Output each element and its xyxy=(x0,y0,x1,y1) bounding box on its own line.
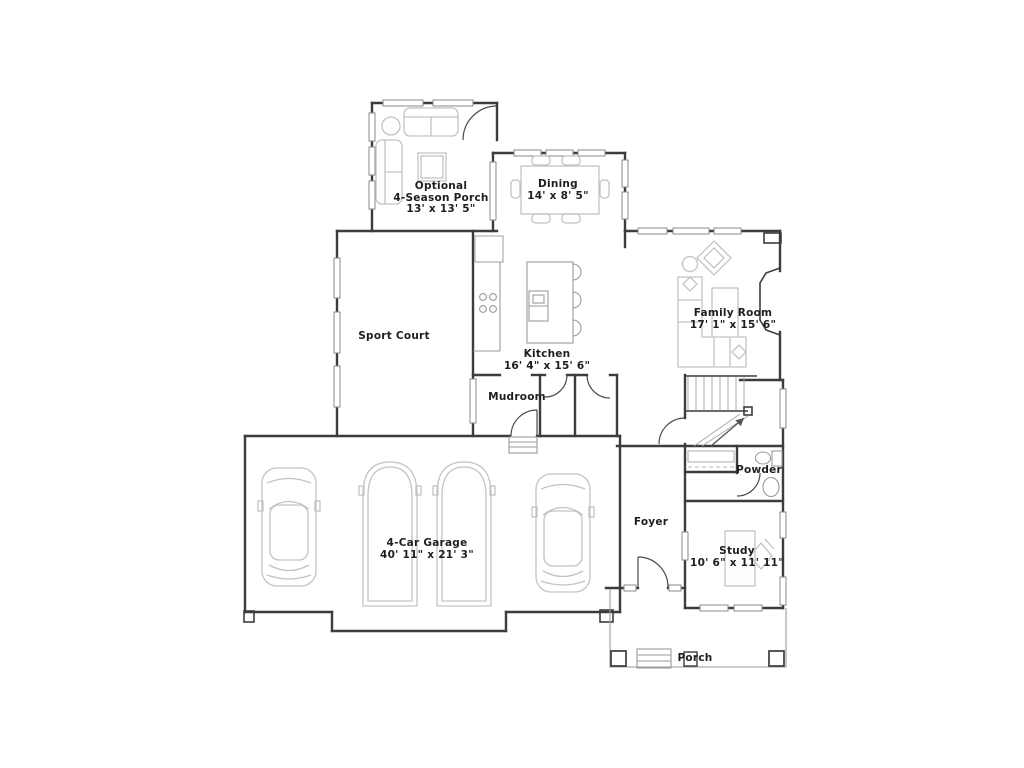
window xyxy=(383,100,423,106)
coffee-table-icon xyxy=(418,153,446,181)
stair-arrow xyxy=(735,418,744,426)
room-label-sport-court: Sport Court xyxy=(358,331,430,343)
understair-door-arc xyxy=(659,418,685,444)
window xyxy=(433,100,473,106)
garage-entry-door xyxy=(511,410,537,436)
van-outline-icon xyxy=(433,462,495,606)
porch-column-icon xyxy=(769,651,784,666)
room-name: Porch xyxy=(677,653,712,665)
side-table-icon xyxy=(683,257,698,272)
window xyxy=(638,228,667,234)
corner-post xyxy=(764,233,781,243)
window xyxy=(334,258,340,298)
window xyxy=(780,512,786,538)
window xyxy=(334,366,340,407)
front-door-icon xyxy=(638,557,668,587)
room-name: Family Room xyxy=(690,308,776,320)
room-dims: 16' 4" x 15' 6" xyxy=(504,361,590,373)
sidelite-window xyxy=(624,585,636,591)
room-name: Foyer xyxy=(634,517,668,529)
armchair-icon xyxy=(697,241,731,275)
porch-column-icon xyxy=(611,651,626,666)
window xyxy=(490,162,496,220)
room-dims: 40' 11" x 21' 3" xyxy=(380,550,474,562)
van-outline-icon xyxy=(359,462,421,606)
refrigerator-icon xyxy=(475,236,503,262)
kitchen-fixtures xyxy=(473,236,581,351)
room-label-study: Study 10' 6" x 11' 11" xyxy=(690,546,784,569)
window xyxy=(700,605,728,611)
window xyxy=(714,228,741,234)
porch-door-arc xyxy=(463,106,497,140)
closet-door-arc xyxy=(545,375,567,397)
room-label-powder: Powder xyxy=(736,465,782,477)
window xyxy=(369,147,375,175)
garage-contents xyxy=(258,437,594,606)
room-name: Optional xyxy=(393,181,488,193)
cased-opening xyxy=(682,532,688,560)
round-table-icon xyxy=(382,117,400,135)
room-name: 4-Car Garage xyxy=(380,538,474,550)
room-name: Powder xyxy=(736,465,782,477)
floor-plan-canvas xyxy=(0,0,1024,768)
window xyxy=(369,113,375,141)
room-label-foyer: Foyer xyxy=(634,517,668,529)
room-name: Dining xyxy=(527,179,589,191)
sidelite-window xyxy=(669,585,681,591)
stairs-icon xyxy=(685,376,757,446)
window xyxy=(622,192,628,219)
room-label-season-porch: Optional 4-Season Porch 13' x 13' 5" xyxy=(393,181,488,216)
room-dims: 17' 1" x 15' 6" xyxy=(690,320,776,332)
room-label-dining: Dining 14' x 8' 5" xyxy=(527,179,589,202)
window xyxy=(369,181,375,209)
family-room-furniture xyxy=(678,241,746,367)
room-dims: 14' x 8' 5" xyxy=(527,191,589,203)
room-label-mudroom: Mudroom xyxy=(488,392,546,404)
cooktop-icon xyxy=(480,294,497,313)
room-label-family-room: Family Room 17' 1" x 15' 6" xyxy=(690,308,776,331)
window xyxy=(334,312,340,353)
room-name: Kitchen xyxy=(504,349,590,361)
room-dims: 13' x 13' 5" xyxy=(393,204,488,216)
room-label-kitchen: Kitchen 16' 4" x 15' 6" xyxy=(504,349,590,372)
cased-opening xyxy=(470,379,476,423)
room-label-porch: Porch xyxy=(677,653,712,665)
room-label-garage: 4-Car Garage 40' 11" x 21' 3" xyxy=(380,538,474,561)
bar-stool-icon xyxy=(573,264,581,336)
window xyxy=(734,605,762,611)
room-dims: 10' 6" x 11' 11" xyxy=(690,558,784,570)
room-name: Sport Court xyxy=(358,331,430,343)
window xyxy=(514,150,541,156)
closet-shelf xyxy=(688,451,734,462)
garage-steps-icon xyxy=(509,437,537,453)
window xyxy=(780,389,786,428)
window xyxy=(780,577,786,605)
closet-door-arc xyxy=(587,375,610,398)
window xyxy=(578,150,605,156)
sink-icon xyxy=(529,291,548,321)
window xyxy=(622,160,628,187)
car-icon xyxy=(258,468,320,586)
sofa-icon xyxy=(404,108,458,136)
room-name: Study xyxy=(690,546,784,558)
porch-steps-icon xyxy=(637,649,671,668)
sink-icon xyxy=(763,478,779,497)
floor-plan: Optional 4-Season Porch 13' x 13' 5" Din… xyxy=(0,0,1024,768)
room-name: Mudroom xyxy=(488,392,546,404)
window xyxy=(546,150,573,156)
window xyxy=(673,228,709,234)
car-icon xyxy=(532,474,594,592)
